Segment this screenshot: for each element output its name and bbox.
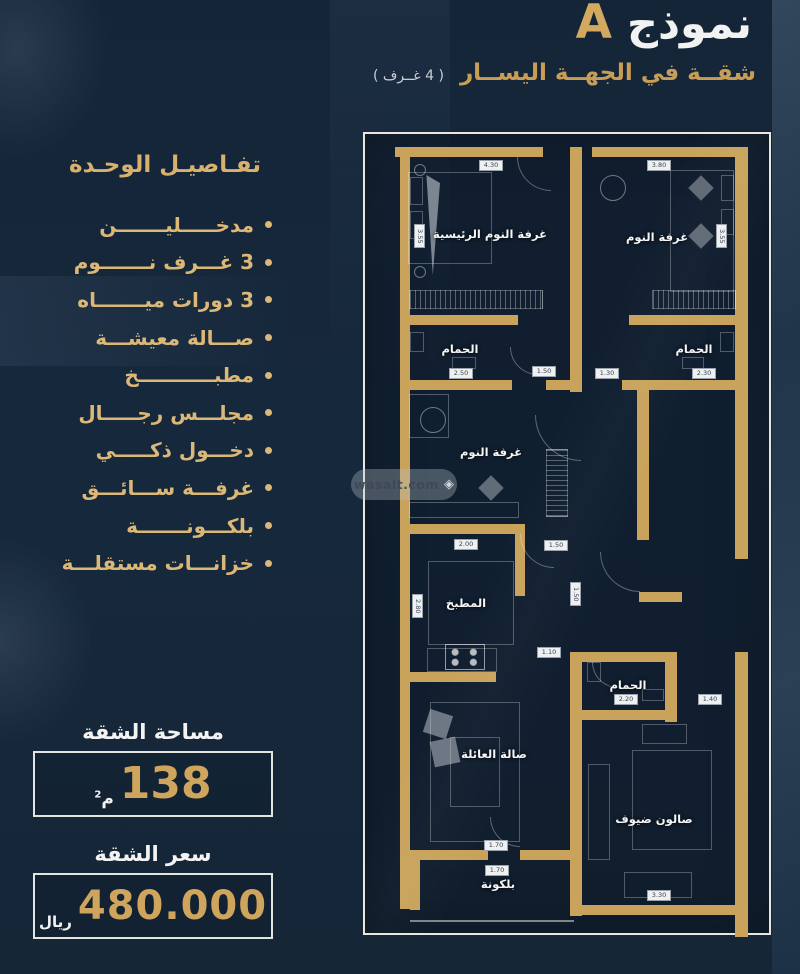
bed-outline <box>408 172 492 264</box>
kitchen-counter-outline <box>427 648 497 672</box>
details-heading: تفـاصيـل الوحـدة <box>0 152 330 178</box>
dimension-marker: 1.50 <box>570 582 581 606</box>
brochure-page: نموذج A شقــة في الجهــة اليســار ( 4 غـ… <box>0 0 800 974</box>
wardrobe-outline <box>546 449 568 517</box>
dimension-marker: 3.55 <box>414 224 425 248</box>
wall-segment <box>570 652 677 662</box>
wardrobe-outline <box>652 290 736 309</box>
decor-star-outline <box>688 223 713 248</box>
floor-plan: 4.303.803.553.552.501.501.302.302.001.50… <box>363 132 771 935</box>
wall-segment <box>400 315 518 325</box>
closet-outline <box>409 394 449 438</box>
door-arc <box>600 552 640 592</box>
dimension-marker: 2.80 <box>412 594 423 618</box>
bullet-icon <box>265 409 272 416</box>
subtitle-note: ( 4 غــرف ) <box>373 68 444 84</box>
decor-star-outline <box>688 175 713 200</box>
dimension-marker: 3.80 <box>647 160 671 171</box>
list-item: خزانـــات مستقلـــة <box>26 544 272 582</box>
page-subtitle: شقــة في الجهــة اليســار ( 4 غــرف ) <box>373 60 756 86</box>
list-item: 3 دورات ميـــــــاه <box>26 281 272 319</box>
wall-segment <box>579 905 748 915</box>
list-item: مجلـــس رجـــــال <box>26 394 272 432</box>
wall-segment <box>637 390 649 540</box>
price-currency: ريال <box>39 913 72 931</box>
bullet-icon <box>265 522 272 529</box>
room-label-bathroom-1: الحمام <box>441 342 478 356</box>
bullet-icon <box>265 560 272 567</box>
wall-segment <box>582 710 677 720</box>
price-section: سعر الشقة 480.000 ريال <box>33 842 273 939</box>
dimension-marker: 2.20 <box>614 694 638 705</box>
bullet-icon <box>265 334 272 341</box>
wardrobe-outline <box>409 290 543 309</box>
plant-outline <box>423 709 453 739</box>
list-item: دخـــول ذكـــــي <box>26 432 272 470</box>
header: نموذج A <box>576 0 752 51</box>
pillow-outline <box>410 177 423 205</box>
vanity-counter-outline <box>409 502 519 518</box>
door-arc <box>517 157 551 191</box>
list-item: بلكـــونـــــــة <box>26 507 272 545</box>
area-unit: م2 <box>94 789 113 809</box>
bullet-icon <box>265 372 272 379</box>
right-photo-band <box>772 0 800 974</box>
wall-segment <box>515 524 525 596</box>
wall-segment <box>410 850 488 860</box>
watermark: wasalt.com ◈ <box>351 469 457 500</box>
room-label-bathroom-2: الحمام <box>675 342 712 356</box>
wall-segment <box>665 652 677 722</box>
room-label-bedroom-3: غرفة النوم <box>460 445 522 459</box>
room-label-kitchen: المطبخ <box>446 596 486 610</box>
dimension-marker: 2.00 <box>454 539 478 550</box>
watermark-text: wasalt.com <box>354 477 439 492</box>
plant-outline <box>430 737 461 768</box>
list-item: مطبـــــــــــخ <box>26 356 272 394</box>
drape-outline <box>424 175 440 275</box>
balcony-edge-line <box>410 920 574 922</box>
dimension-marker: 3.30 <box>647 890 671 901</box>
dimension-marker: 2.30 <box>692 368 716 379</box>
pillow-outline <box>721 175 734 201</box>
wall-segment <box>570 147 582 392</box>
wall-segment <box>546 380 582 390</box>
price-box: 480.000 ريال <box>33 873 273 939</box>
wall-segment <box>410 850 420 910</box>
dimension-marker: 1.50 <box>544 540 568 551</box>
bullet-icon <box>265 259 272 266</box>
bullet-icon <box>265 447 272 454</box>
dimension-marker: 1.70 <box>484 840 508 851</box>
wall-segment <box>395 147 543 157</box>
page-title: نموذج A <box>576 0 752 51</box>
list-item: مدخـــــليـــــــن <box>26 206 272 244</box>
area-section: مساحة الشقة 138 م2 <box>33 720 273 817</box>
wall-segment <box>400 672 496 682</box>
wall-segment <box>400 380 512 390</box>
dimension-marker: 4.30 <box>479 160 503 171</box>
list-item: غرفـــة ســـائـــق <box>26 469 272 507</box>
price-value: 480.000 <box>78 886 267 926</box>
price-heading: سعر الشقة <box>33 842 273 866</box>
room-label-family-hall: صالة العائلة <box>461 747 527 761</box>
room-label-balcony: بلكونة <box>481 877 515 891</box>
rug-outline <box>632 750 712 850</box>
ceiling-lamp-outline <box>414 164 426 176</box>
sofa-outline <box>588 764 610 860</box>
area-value: 138 <box>120 762 212 806</box>
diamond-icon: ◈ <box>444 477 454 492</box>
dimension-marker: 1.40 <box>698 694 722 705</box>
dimension-marker: 1.30 <box>595 368 619 379</box>
bullet-icon <box>265 221 272 228</box>
wall-segment <box>570 652 582 916</box>
list-item: صـــالة معيشـــة <box>26 319 272 357</box>
dimension-marker: 1.50 <box>532 366 556 377</box>
ceiling-lamp-outline <box>414 266 426 278</box>
toilet-outline <box>587 662 601 682</box>
toilet-outline <box>720 332 734 352</box>
model-letter: A <box>576 0 612 50</box>
model-word: نموذج <box>627 0 752 49</box>
ceiling-fan-outline <box>420 407 446 433</box>
dimension-marker: 1.70 <box>485 865 509 876</box>
decor-star-outline <box>478 475 503 500</box>
wall-segment <box>400 147 410 909</box>
wall-segment <box>629 315 745 325</box>
dimension-marker: 3.55 <box>716 224 727 248</box>
sofa-outline <box>430 702 520 842</box>
photo-glow <box>0 0 110 160</box>
room-label-guest-salon: صالون ضيوف <box>615 812 692 826</box>
area-box: 138 م2 <box>33 751 273 817</box>
door-arc <box>535 415 581 461</box>
wall-segment <box>400 524 518 534</box>
dimension-marker: 1.10 <box>537 647 561 658</box>
area-heading: مساحة الشقة <box>33 720 273 744</box>
wall-segment <box>639 592 682 602</box>
room-label-bedroom-2: غرفة النوم <box>626 230 688 244</box>
stove-outline <box>445 644 485 670</box>
wall-segment <box>622 380 748 390</box>
list-item: 3 غـــرف نـــــــوم <box>26 244 272 282</box>
room-label-bathroom-3: الحمام <box>609 678 646 692</box>
subtitle-text: شقــة في الجهــة اليســار <box>460 60 756 86</box>
sofa-outline <box>642 724 687 744</box>
ceiling-fan-outline <box>600 175 626 201</box>
toilet-outline <box>410 332 424 352</box>
details-list: مدخـــــليـــــــن 3 غـــرف نـــــــوم 3… <box>26 206 272 582</box>
bullet-icon <box>265 296 272 303</box>
wall-segment <box>592 147 745 157</box>
bullet-icon <box>265 484 272 491</box>
wall-segment <box>735 652 748 937</box>
dimension-marker: 2.50 <box>449 368 473 379</box>
wall-segment <box>735 147 748 559</box>
wall-segment <box>520 850 582 860</box>
room-label-master-bedroom: غرفة النوم الرئيسية <box>433 227 547 241</box>
